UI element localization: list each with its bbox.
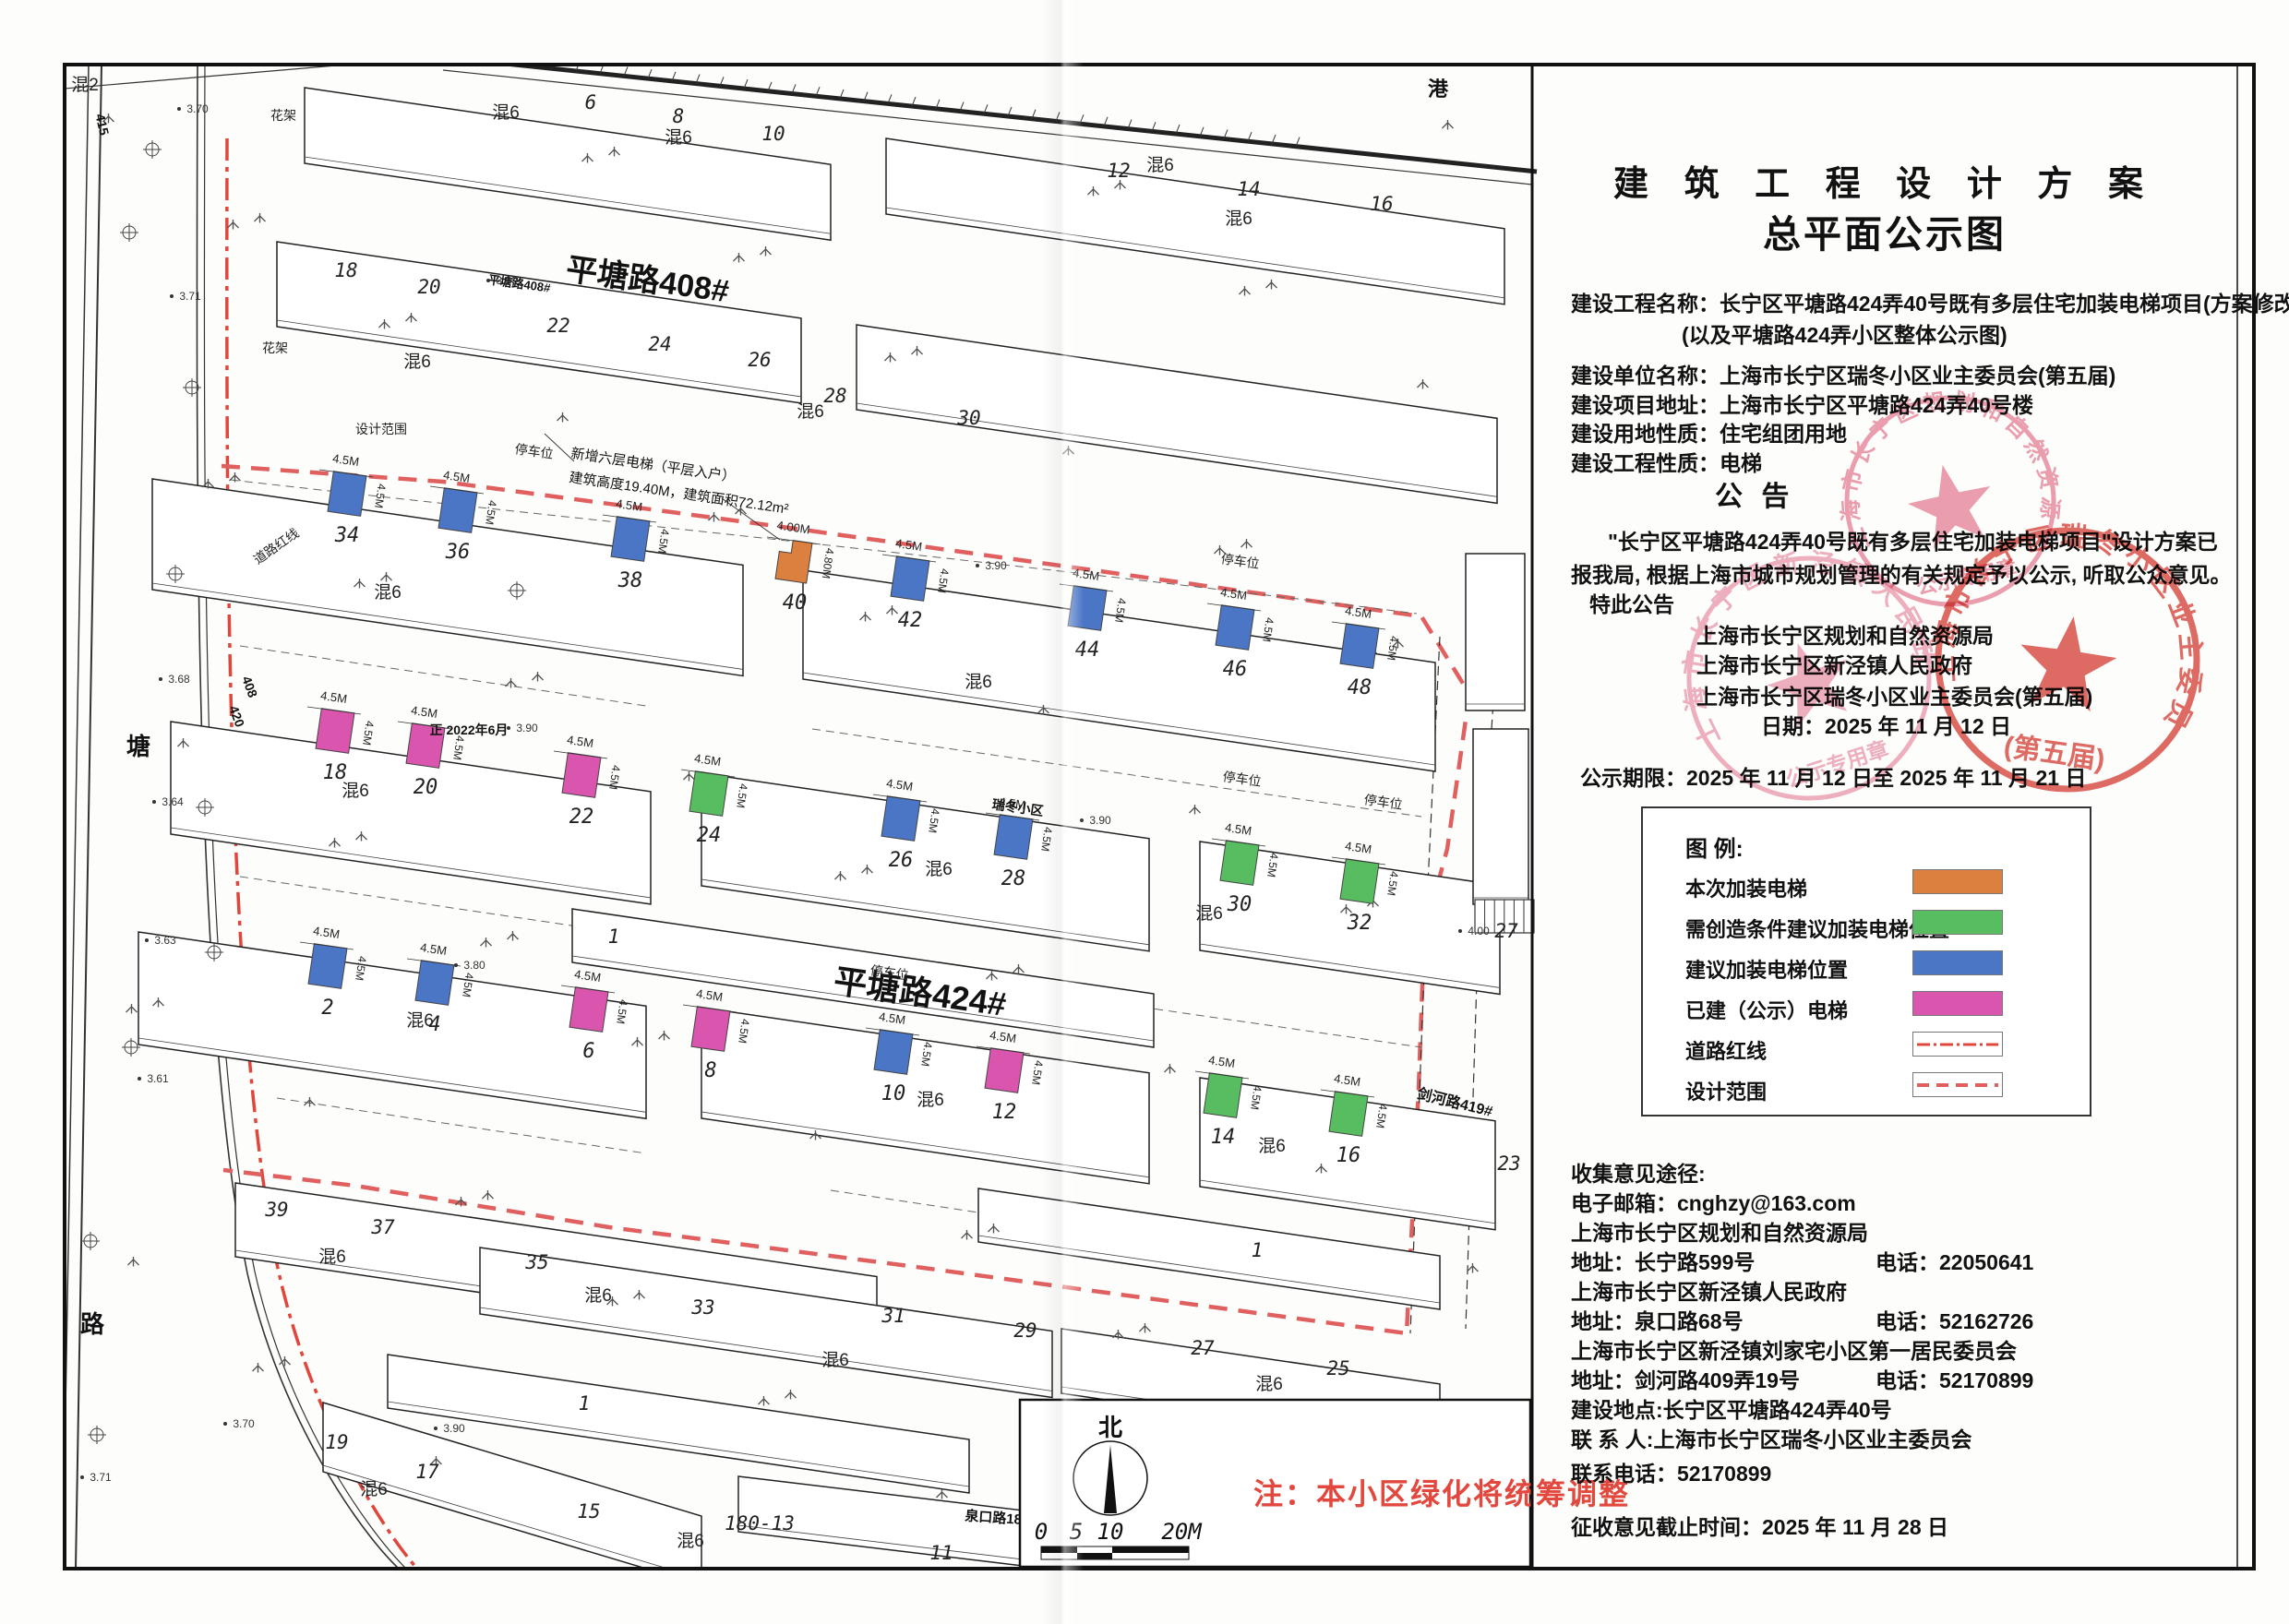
addr-text: 地址：泉口路68号: [1571, 1309, 1744, 1333]
elevation-dot: [138, 1077, 141, 1081]
area-type-label: 混6: [677, 1531, 704, 1551]
tree-icon: [962, 1230, 973, 1240]
project-type-line: 建设工程性质：电梯: [1571, 446, 1762, 477]
building-number: 16: [1336, 1144, 1361, 1167]
building-number: 16: [1370, 193, 1393, 215]
building-number: 2: [321, 997, 333, 1020]
dimension-label: 4.5M: [1344, 839, 1372, 856]
svg-text:上海市长宁区瑞冬小区业主委员会: 上海市长宁区瑞冬小区业主委员会: [1911, 504, 2224, 740]
area-type-label: 混6: [925, 859, 953, 879]
area-type-label: 混6: [406, 1010, 434, 1031]
elevation-label: 3.70: [186, 102, 209, 115]
dimension-label: 4.5M: [1112, 597, 1129, 623]
contact-email: 电子邮箱：cnghzy@163.com: [1571, 1186, 1856, 1217]
contact-addr-committee: 地址：剑河路409弄19号 电话：52170899: [1571, 1363, 1800, 1394]
building-number: 25: [1326, 1357, 1349, 1379]
tree-icon: [255, 213, 266, 223]
building-number: 23: [1497, 1152, 1520, 1175]
tree-icon: [1190, 805, 1201, 815]
building-number: 12: [992, 1101, 1017, 1124]
tree-icon: [785, 1390, 797, 1400]
dimension-label: 4.5M: [655, 528, 672, 554]
building-number: 22: [546, 315, 569, 337]
legend-swatch-scope: [1912, 1072, 2003, 1097]
building-number: 36: [445, 541, 471, 564]
area-type-label: 混6: [665, 127, 692, 148]
dimension-label: 4.5M: [360, 720, 377, 746]
building-number: 20: [413, 776, 438, 799]
legend-label-conditional: 需创造条件建议加装电梯位置: [1685, 913, 1949, 943]
building-number: 46: [1223, 658, 1248, 681]
building-number: 27: [1191, 1337, 1215, 1359]
scale-tick: 20M: [1161, 1519, 1203, 1545]
legend-box: 图 例: 本次加装电梯 需创造条件建议加装电梯位置 建议加装电梯位置 已建（公示…: [1641, 806, 2091, 1116]
map-note-label: 花架: [270, 108, 296, 123]
dimension-label: 4.5M: [615, 496, 643, 514]
elevation-dot: [454, 963, 458, 967]
elevation-label: 3.90: [985, 559, 1007, 572]
dimension-label: 4.5M: [483, 499, 499, 525]
dimension-label: 4.5M: [312, 924, 341, 941]
paper-crease: [1041, 0, 1084, 1624]
elevation-dot: [152, 800, 156, 804]
dimension-label: 4.5M: [566, 733, 594, 750]
contact-addr-planning: 地址：长宁路599号 电话：22050641: [1571, 1245, 1755, 1276]
elevation-dot: [159, 677, 162, 681]
building-number: 14: [1211, 1126, 1236, 1149]
building-number: 30: [1227, 893, 1252, 916]
tree-icon: [126, 1004, 138, 1014]
elevation-dot: [1458, 929, 1462, 933]
elevation-label: 4.00: [1468, 925, 1490, 937]
building-number: 32: [1347, 912, 1372, 935]
area-type-label: 混6: [584, 1285, 612, 1306]
building-number: 48: [1348, 676, 1372, 699]
contact-org-planning: 上海市长宁区规划和自然资源局: [1571, 1215, 1868, 1247]
elevation-dot: [177, 107, 181, 111]
building-number: 40: [783, 591, 808, 615]
dimension-label: 4.5M: [935, 567, 952, 593]
addr-text: 地址：长宁路599号: [1571, 1250, 1755, 1274]
area-type-label: 混6: [1258, 1136, 1286, 1156]
area-type-label: 混6: [965, 672, 992, 692]
building-number: 19: [325, 1431, 348, 1453]
legend-label-road-redline: 道路红线: [1685, 1035, 1767, 1065]
elevation-label: 3.70: [233, 1417, 255, 1430]
dimension-label: 4.5M: [878, 1009, 906, 1027]
area-type-label: 混6: [797, 401, 824, 422]
tree-icon: [481, 937, 492, 948]
dimension-label: 4.5M: [410, 703, 438, 721]
building-outline: [305, 88, 831, 240]
area-type-label: 混6: [1146, 155, 1174, 175]
dimension-label: 4.5M: [1333, 1071, 1361, 1089]
dimension-label: 4.5M: [372, 483, 389, 508]
tree-icon: [1443, 120, 1454, 130]
public-notice-sheet: 344.5M4.5M364.5M4.5M384.5M4.5M404.00M4.8…: [0, 0, 2289, 1624]
dimension-label: 4.5M: [1219, 585, 1248, 603]
legend-label-new-elevator: 本次加装电梯: [1685, 873, 1807, 902]
area-type-label: 混6: [1225, 209, 1252, 229]
building-number: 28: [1001, 867, 1026, 890]
elevation-label: 3.61: [147, 1072, 169, 1085]
building-number: 180-13: [725, 1512, 795, 1534]
legend-label-built: 已建（公示）电梯: [1685, 995, 1848, 1024]
area-type-label: 混6: [821, 1350, 849, 1370]
tree-icon: [483, 1190, 494, 1200]
map-note-label: 设计范围: [355, 422, 407, 436]
building-outline: [1466, 554, 1525, 710]
elevation-label: 3.90: [496, 274, 518, 287]
area-type-label: 混6: [374, 582, 401, 603]
building-number: 20: [417, 276, 440, 298]
road-name-label: 420: [226, 704, 247, 730]
elevation-dot: [507, 726, 510, 730]
stamp-owners-committee: 上海市长宁区瑞冬小区业主委员会 (第五届): [1911, 504, 2224, 817]
building-number: 10: [761, 123, 785, 145]
building-number: 35: [524, 1251, 548, 1273]
contact-org-committee: 上海市长宁区新泾镇刘家宅小区第一居民委员会: [1571, 1333, 2017, 1365]
tree-icon: [709, 512, 720, 522]
map-note-label: 停车位: [1222, 769, 1263, 789]
map-note-label: 停车位: [514, 441, 555, 461]
map-note-label: 花架: [262, 340, 288, 355]
tree-icon: [1140, 1323, 1151, 1333]
tree-icon: [1013, 964, 1025, 974]
legend-label-design-scope: 设计范围: [1685, 1076, 1767, 1105]
legend-label-suggested: 建议加装电梯位置: [1685, 954, 1848, 984]
legend-swatch-magenta: [1912, 991, 2003, 1016]
tree-icon: [1165, 1064, 1176, 1074]
project-name-line2: (以及平塘路424弄小区整体公示图): [1571, 317, 2007, 349]
tree-icon: [1240, 286, 1251, 296]
map-note-label: 停车位: [1220, 551, 1261, 571]
building-number: 22: [569, 806, 594, 829]
tree-icon: [1241, 539, 1252, 549]
dimension-label: 4.5M: [460, 972, 476, 997]
dimension-label: 4.5M: [1224, 820, 1252, 838]
dimension-label: 4.5M: [419, 940, 448, 958]
legend-swatch-blue: [1912, 950, 2003, 975]
dimension-label: 4.5M: [331, 451, 360, 469]
road-name-label: 正 2022年6月: [430, 722, 509, 737]
building-number: 6: [582, 1040, 594, 1063]
dimension-label: 4.5M: [353, 955, 369, 981]
elevation-label: 3.90: [1089, 814, 1111, 827]
area-type-label: 混6: [318, 1247, 346, 1267]
building-number: 1: [608, 925, 620, 948]
building-number: 10: [881, 1082, 906, 1105]
notice-heading: 公 告: [1715, 473, 1794, 514]
tree-icon: [659, 1031, 670, 1041]
building-number: 27: [1494, 920, 1518, 942]
dimension-label: 4.5M: [606, 764, 623, 790]
road-name-label: 408: [239, 675, 260, 700]
tree-icon: [557, 412, 569, 423]
dimension-label: 4.5M: [693, 751, 722, 769]
building-number: 37: [370, 1216, 395, 1238]
dimension-label: 4.5M: [573, 967, 602, 985]
area-type-label: 混2: [71, 75, 99, 95]
north-label: 北: [1098, 1414, 1122, 1441]
elevation-dot: [223, 1422, 227, 1426]
building-number: 31: [881, 1305, 905, 1327]
tree-icon: [1418, 379, 1429, 389]
dimension-label: 4.5M: [442, 468, 471, 485]
area-type-label: 混6: [1255, 1374, 1283, 1394]
building-outline: [1473, 729, 1528, 904]
elevation-dot: [145, 938, 149, 942]
scale-tick: 10: [1097, 1519, 1124, 1545]
info-panel: 建 筑 工 程 设 计 方 案 总平面公示图 建设工程名称：长宁区平塘路424弄…: [1532, 65, 2237, 1569]
elevation-dot: [434, 1427, 437, 1430]
dimension-label: 4.5M: [1384, 635, 1401, 661]
dimension-label: 4.5M: [894, 536, 923, 554]
dimension-label: 4.5M: [885, 776, 914, 794]
area-type-label: 混6: [360, 1479, 388, 1499]
map-content: 344.5M4.5M364.5M4.5M384.5M4.5M404.00M4.8…: [63, 33, 1537, 1585]
tree-icon: [734, 253, 745, 263]
elevation-label: 3.68: [168, 673, 190, 686]
tree-icon: [1468, 1263, 1479, 1273]
dimension-label: 4.5M: [1344, 603, 1372, 621]
tree-icon: [533, 672, 544, 682]
dimension-label: 4.5M: [989, 1028, 1017, 1045]
tree-icon: [761, 246, 772, 257]
dimension-label: 4.5M: [1260, 616, 1276, 642]
elevation-label: 3.71: [90, 1471, 112, 1484]
tree-icon: [1266, 280, 1277, 290]
phone-text: 电话：22050641: [1876, 1245, 2033, 1276]
area-type-label: 混6: [917, 1090, 944, 1110]
elevation-label: 3.90: [443, 1422, 465, 1435]
area-type-label: 混6: [492, 102, 520, 123]
phone-text: 电话：52170899: [1876, 1363, 2033, 1394]
dimension-label: 4.5M: [319, 688, 348, 706]
phone-text: 电话：52162726: [1876, 1304, 2033, 1335]
contact-person: 联 系 人:上海市长宁区瑞冬小区业主委员会: [1571, 1422, 1971, 1453]
area-type-label: 混6: [1195, 903, 1223, 924]
contact-phone: 联系电话：52170899: [1571, 1456, 1771, 1487]
area-type-label: 混6: [342, 781, 369, 801]
project-name-line: 建设工程名称：长宁区平塘路424弄40号既有多层住宅加装电梯项目(方案修改): [1571, 286, 2289, 317]
building-number: 12: [1107, 160, 1130, 182]
contact-addr-town: 地址：泉口路68号 电话：52162726: [1571, 1304, 1744, 1335]
addr-text: 地址：剑河路409弄19号: [1571, 1368, 1800, 1392]
elevation-label: 3.63: [154, 934, 176, 947]
legend-swatch-orange: [1912, 869, 2003, 894]
tree-icon: [228, 220, 239, 230]
tree-icon: [759, 1396, 770, 1406]
road-name-label: 塘: [126, 733, 150, 760]
building-number: 1: [1252, 1239, 1264, 1261]
elevation-label: 3.71: [179, 290, 201, 303]
elevation-label: 3.80: [463, 959, 485, 972]
building-number: 26: [889, 849, 914, 872]
contact-site: 建设地点:长宁区平塘路424弄40号: [1571, 1392, 1892, 1424]
building-number: 33: [690, 1296, 714, 1319]
building-number: 6: [585, 91, 597, 113]
building-number: 1: [579, 1392, 591, 1415]
building-number: 24: [648, 333, 671, 355]
building-number: 14: [1237, 178, 1260, 200]
road-name-label: 港: [1428, 78, 1449, 101]
building-number: 28: [823, 385, 846, 407]
building-number: 17: [415, 1461, 439, 1483]
road-name-label: 415: [92, 113, 112, 137]
building-number: 42: [898, 609, 923, 632]
contact-org-town: 上海市长宁区新泾镇人民政府: [1571, 1274, 1847, 1306]
svg-text:(第五届): (第五届): [2002, 731, 2107, 776]
legend-swatch-redline: [1912, 1032, 2003, 1057]
elevation-label: 3.64: [162, 795, 184, 808]
legend-swatch-green: [1912, 910, 2003, 935]
sheet-subtitle: 总平面公示图: [1532, 203, 2237, 258]
building-number: 15: [577, 1500, 600, 1522]
area-type-label: 混6: [403, 352, 431, 372]
elevation-label: 3.90: [516, 722, 538, 734]
dimension-label: 4.5M: [1207, 1053, 1236, 1070]
dimension-label: 4.5M: [695, 986, 724, 1004]
tree-icon: [253, 1363, 264, 1373]
tree-icon: [128, 1257, 139, 1267]
tree-icon: [684, 771, 695, 782]
map-note-label: 停车位: [1363, 792, 1404, 812]
building-number: 30: [956, 407, 980, 429]
tree-icon: [937, 1489, 948, 1499]
building-number: 38: [617, 569, 643, 592]
building-number: 24: [697, 824, 722, 847]
building-number: 8: [673, 105, 685, 127]
sheet-title: 建 筑 工 程 设 计 方 案: [1532, 155, 2237, 206]
elevation-dot: [486, 279, 490, 282]
dimension-label: 4.00M: [776, 519, 811, 537]
building-number: 11: [929, 1542, 953, 1564]
contact-heading: 收集意见途径:: [1571, 1156, 1706, 1188]
road-name-label: 路: [80, 1310, 105, 1338]
elevation-dot: [976, 564, 979, 567]
building-number: 8: [704, 1059, 716, 1082]
building-number: 39: [264, 1199, 288, 1221]
building-number: 18: [334, 259, 357, 281]
elevation-dot: [80, 1475, 84, 1479]
building-number: 29: [1013, 1319, 1037, 1342]
building-number: 34: [334, 524, 360, 547]
deadline-line: 征收意见截止时间：2025 年 11 月 28 日: [1571, 1510, 1948, 1541]
building-outline: [857, 325, 1497, 503]
building-number: 26: [748, 349, 771, 371]
dimension-label: 4.5M: [450, 734, 467, 760]
svg-text:公示专用章: 公示专用章: [1783, 736, 1891, 792]
tree-icon: [508, 931, 519, 941]
elevation-dot: [170, 294, 174, 298]
